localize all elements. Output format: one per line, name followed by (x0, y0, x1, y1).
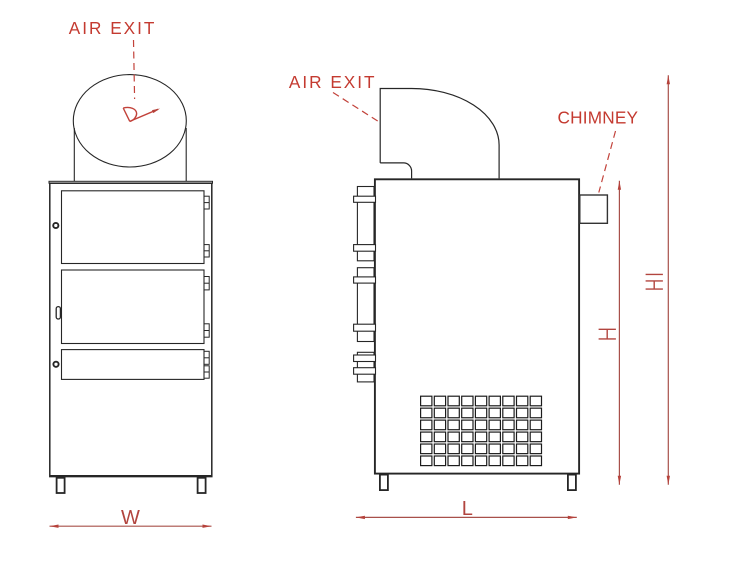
svg-text:CHIMNEY: CHIMNEY (558, 108, 639, 128)
svg-text:L: L (462, 498, 473, 520)
svg-text:AIR EXIT: AIR EXIT (69, 18, 157, 38)
svg-text:AIR EXIT: AIR EXIT (289, 72, 377, 92)
svg-text:W: W (121, 507, 140, 529)
